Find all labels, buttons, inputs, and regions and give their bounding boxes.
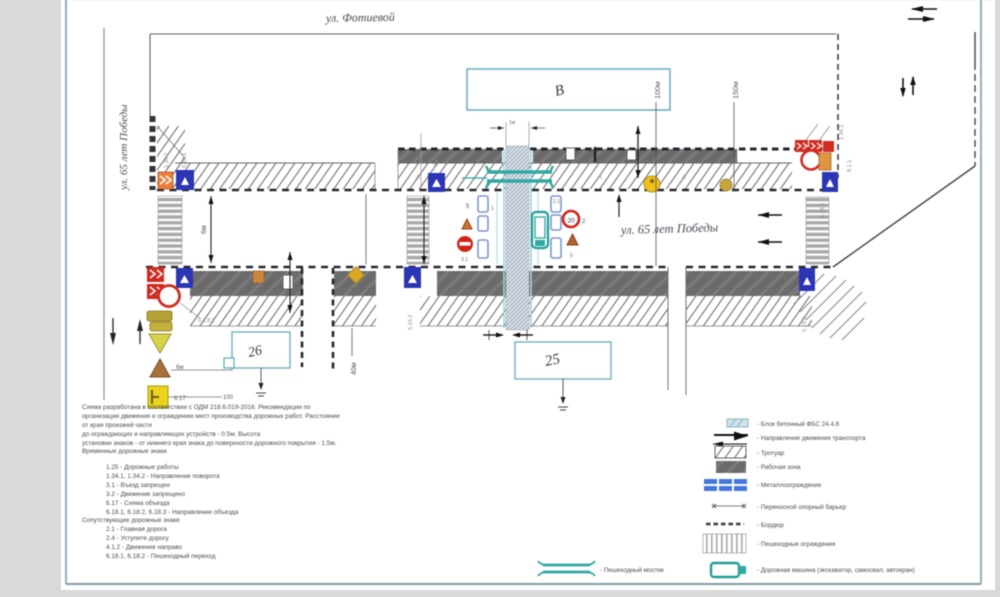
- svg-text:8.1.1: 8.1.1: [847, 160, 853, 172]
- svg-text:0 1.8.1: 0 1.8.1: [198, 318, 215, 324]
- svg-text:ул. 65 лет Победы: ул. 65 лет Победы: [619, 220, 719, 237]
- svg-text:1.34.1: 1.34.1: [839, 125, 845, 140]
- svg-text:6м: 6м: [201, 225, 208, 234]
- svg-text:ул. 65 лет Победы: ул. 65 лет Победы: [118, 104, 130, 191]
- svg-text:1.34.1, 1.34.2 - Направление п: 1.34.1, 1.34.2 - Направление поворота: [106, 473, 220, 480]
- svg-text:организации движения и огражде: организации движения и ограждению мест п…: [82, 412, 340, 420]
- svg-text:4.1.2 - Движение направо: 4.1.2 - Движение направо: [106, 544, 182, 551]
- svg-text:- Переносной опорный барьер: - Переносной опорный барьер: [757, 503, 847, 511]
- svg-text:5: 5: [570, 253, 573, 259]
- svg-text:А: А: [681, 175, 686, 181]
- svg-text:- Блок бетонный ФБС 24.4.6: - Блок бетонный ФБС 24.4.6: [757, 420, 840, 428]
- svg-text:2.1 - Главная дорога: 2.1 - Главная дорога: [106, 526, 167, 533]
- svg-text:- Тротуар: - Тротуар: [757, 450, 785, 457]
- svg-text:5.19.2: 5.19.2: [408, 315, 414, 330]
- svg-text:- Рабочая зона: - Рабочая зона: [757, 463, 801, 471]
- svg-text:6.17 - Схема объезда: 6.17 - Схема объезда: [106, 499, 170, 507]
- svg-text:1: 1: [491, 206, 494, 212]
- svg-text:1.34.2: 1.34.2: [164, 153, 170, 168]
- svg-text:- Бордюр: - Бордюр: [757, 522, 784, 529]
- svg-text:Схема разработана в соответств: Схема разработана в соответствии с ОДМ 2…: [82, 403, 311, 411]
- svg-text:- Направление движения транспо: - Направление движения транспорта: [757, 435, 866, 442]
- svg-text:3.2 - Движение запрещено: 3.2 - Движение запрещено: [106, 491, 185, 498]
- svg-text:5.19.1: 5.19.1: [182, 153, 188, 168]
- svg-text:Сопутствующие дорожные знаки: Сопутствующие дорожные знаки: [82, 517, 180, 524]
- svg-text:от края проезжей части: от края проезжей части: [82, 421, 152, 429]
- svg-text:- Дорожная машина (экскаватор,: - Дорожная машина (экскаватор, самосвал,…: [757, 567, 915, 574]
- svg-text:3м: 3м: [434, 159, 440, 166]
- svg-text:1м: 1м: [509, 120, 516, 126]
- svg-text:150м: 150м: [731, 81, 740, 99]
- svg-text:5.19.2: 5.19.2: [802, 317, 808, 332]
- svg-text:2.4 - Уступите дорогу: 2.4 - Уступите дорогу: [106, 535, 170, 542]
- svg-text:5.19.1: 5.19.1: [820, 203, 826, 218]
- svg-text:до ограждающих и направляющих: до ограждающих и направляющих устройств …: [82, 430, 261, 438]
- svg-text:3.1 - Въезд запрещен: 3.1 - Въезд запрещен: [106, 482, 170, 489]
- svg-text:1.25 - Дорожные работы: 1.25 - Дорожные работы: [106, 463, 179, 471]
- svg-text:100: 100: [223, 395, 234, 401]
- svg-text:3.1: 3.1: [461, 257, 468, 263]
- svg-text:- Металлоограждение: - Металлоограждение: [757, 482, 822, 489]
- svg-text:установки знаков - от нижнего: установки знаков - от нижнего края знака…: [82, 440, 337, 447]
- svg-text:ул. Фотиевой: ул. Фотиевой: [325, 10, 395, 25]
- svg-text:А: А: [597, 175, 602, 181]
- svg-text:- Пешеходные ограждения: - Пешеходные ограждения: [757, 541, 835, 548]
- svg-text:1.1: 1.1: [553, 199, 560, 205]
- svg-text:6.18.1, 6.18.2, 6.18.3 - Напра: 6.18.1, 6.18.2, 6.18.3 - Направление объ…: [106, 508, 239, 516]
- svg-text:Временные дорожные знаки: Временные дорожные знаки: [82, 448, 167, 455]
- svg-text:100м: 100м: [653, 81, 662, 99]
- svg-text:А: А: [415, 175, 420, 181]
- svg-text:6.18.1, 6.18.2 - Пешеходный пе: 6.18.1, 6.18.2 - Пешеходный переход: [106, 552, 216, 560]
- svg-text:20: 20: [568, 218, 576, 225]
- svg-text:- Пешеходный мостик: - Пешеходный мостик: [600, 566, 664, 574]
- svg-text:40м: 40м: [351, 362, 358, 375]
